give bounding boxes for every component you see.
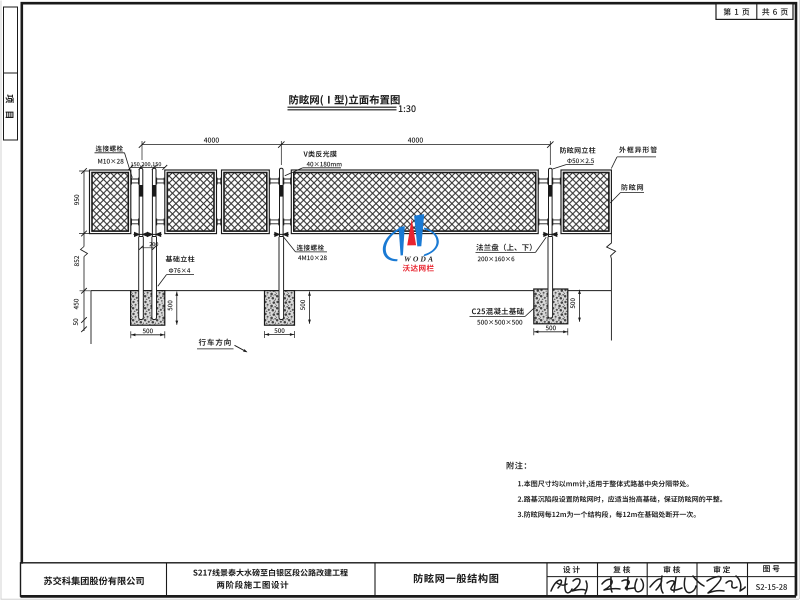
svg-text:WODA: WODA xyxy=(404,254,435,263)
